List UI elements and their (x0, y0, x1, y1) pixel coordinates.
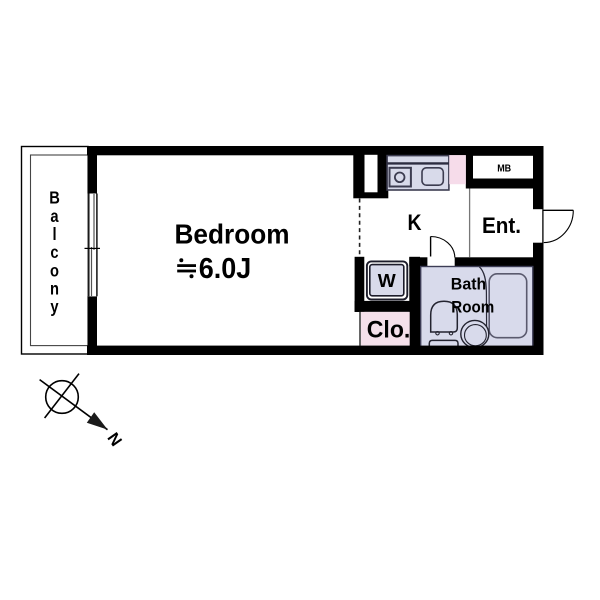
svg-text:Ent.: Ent. (482, 213, 521, 238)
svg-text:Bath: Bath (451, 275, 487, 294)
svg-text:Bedroom: Bedroom (175, 219, 290, 250)
svg-text:B: B (49, 189, 60, 208)
svg-text:K: K (408, 210, 422, 235)
svg-text:W: W (378, 270, 397, 291)
svg-text:MB: MB (497, 163, 511, 175)
svg-text:l: l (52, 225, 56, 244)
svg-text:y: y (50, 297, 58, 316)
svg-text:Room: Room (451, 298, 494, 317)
svg-text:6.0J: 6.0J (199, 253, 252, 285)
svg-text:c: c (50, 243, 58, 262)
svg-text:n: n (50, 279, 59, 298)
svg-text:Clo.: Clo. (367, 317, 411, 344)
svg-text:a: a (50, 207, 59, 226)
svg-text:o: o (50, 261, 59, 280)
